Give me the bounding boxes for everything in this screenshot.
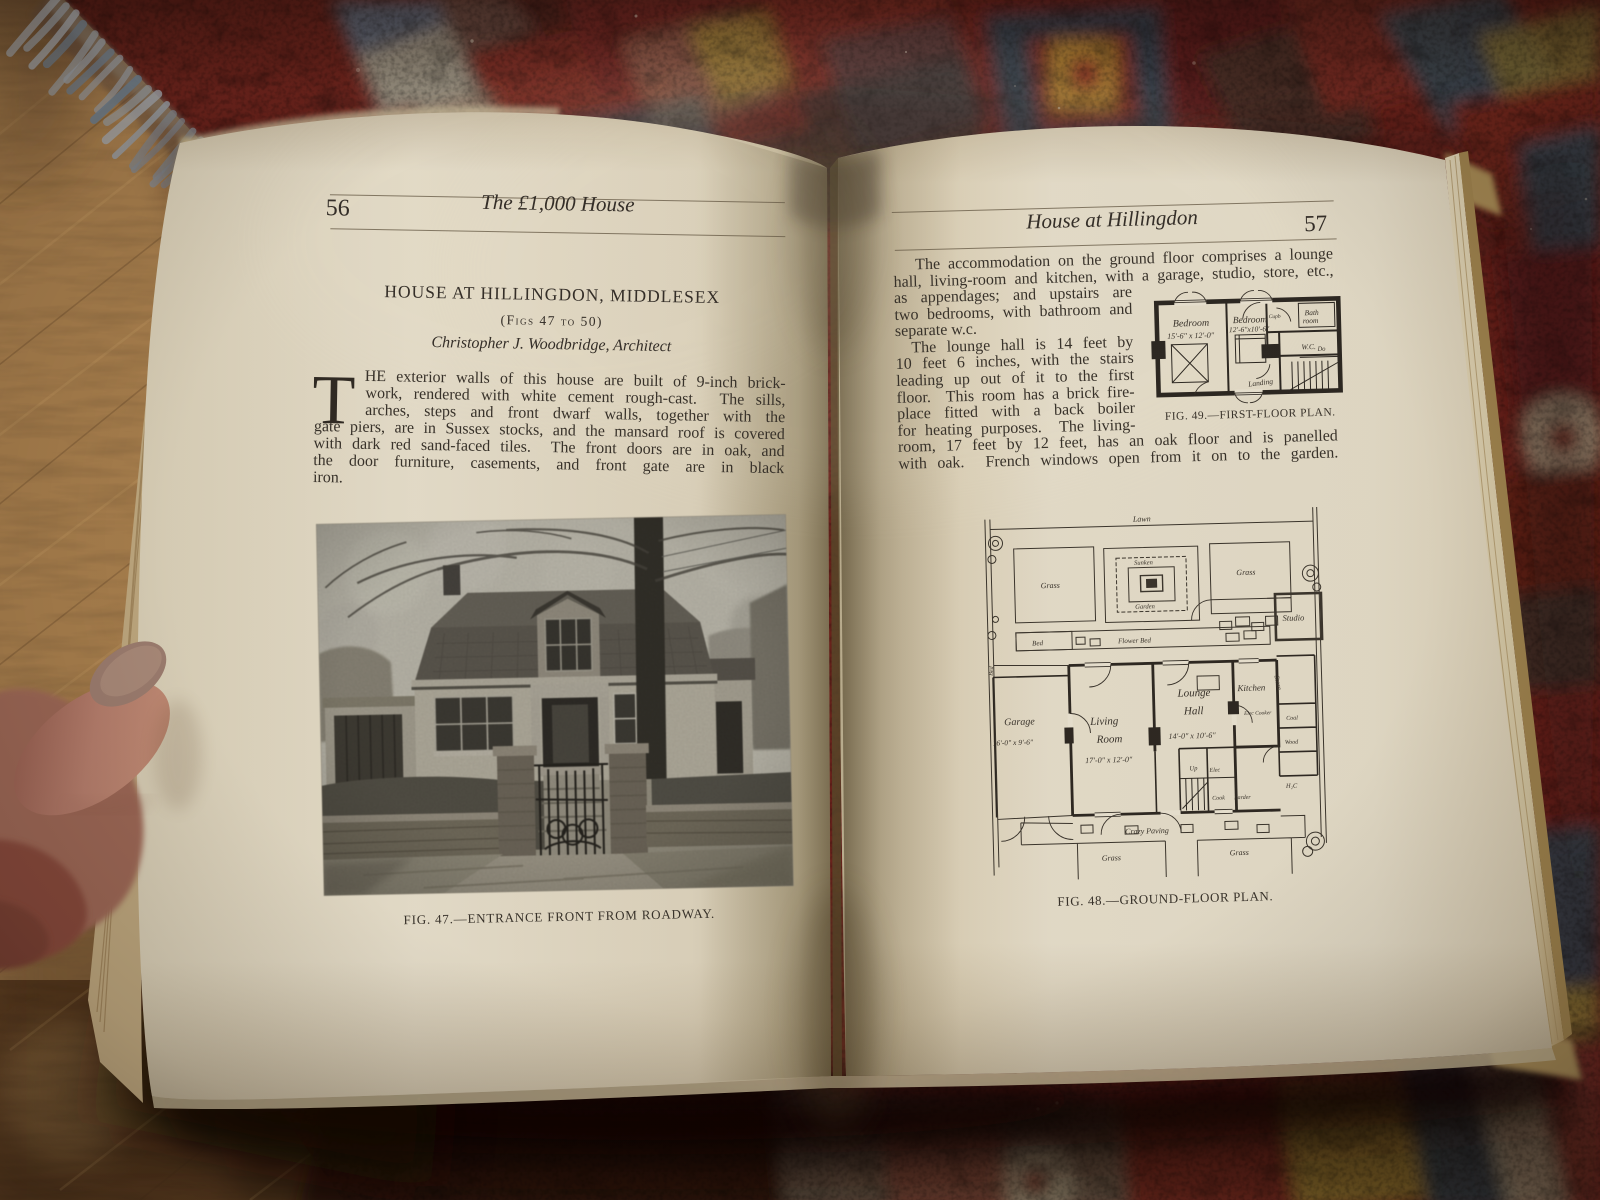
- svg-text:Living: Living: [1089, 715, 1119, 728]
- svg-text:17′-0″ x 12′-0″: 17′-0″ x 12′-0″: [1085, 755, 1133, 765]
- svg-text:Kitchen: Kitchen: [1236, 682, 1266, 693]
- svg-text:Studio: Studio: [1282, 612, 1304, 623]
- svg-text:Bedroom: Bedroom: [1173, 318, 1210, 330]
- svg-text:Lounge: Lounge: [1176, 687, 1210, 700]
- svg-text:Sunken: Sunken: [1134, 559, 1153, 566]
- svg-text:Lawn: Lawn: [1132, 514, 1151, 523]
- svg-text:room: room: [1303, 316, 1319, 325]
- svg-text:14′-0″ x 10′-6″: 14′-0″ x 10′-6″: [1168, 731, 1216, 741]
- svg-text:Grass: Grass: [1230, 848, 1249, 857]
- svg-text:Grass: Grass: [1102, 853, 1121, 862]
- svg-text:Garage: Garage: [1004, 716, 1035, 728]
- svg-text:W.C.: W.C.: [1301, 342, 1316, 351]
- svg-text:Coal: Coal: [1286, 716, 1298, 722]
- svg-text:Garden: Garden: [1135, 603, 1155, 611]
- svg-text:Crazy Paving: Crazy Paving: [1125, 826, 1169, 836]
- svg-text:Wood: Wood: [1285, 740, 1300, 746]
- svg-text:Bed: Bed: [989, 665, 996, 676]
- svg-text:Elec Cooker: Elec Cooker: [1243, 710, 1272, 717]
- svg-text:Elec: Elec: [1208, 768, 1220, 774]
- svg-text:Do: Do: [1316, 346, 1326, 353]
- svg-text:Bed: Bed: [1032, 639, 1044, 647]
- svg-text:Cook: Cook: [1212, 795, 1225, 801]
- svg-text:Up: Up: [1189, 765, 1198, 772]
- svg-text:Larder: Larder: [1233, 795, 1251, 801]
- svg-text:H₂C: H₂C: [1285, 783, 1298, 790]
- svg-text:12′-6″x10′-6″: 12′-6″x10′-6″: [1229, 324, 1270, 334]
- svg-text:15′-6″ x 12′-0″: 15′-6″ x 12′-0″: [1167, 331, 1215, 341]
- svg-text:Grass: Grass: [1041, 581, 1060, 590]
- svg-text:Cupb: Cupb: [1269, 314, 1281, 320]
- svg-text:16′-0″ x 9′-6″: 16′-0″ x 9′-6″: [993, 737, 1034, 747]
- svg-text:Store: Store: [1273, 675, 1284, 691]
- svg-text:Room: Room: [1096, 733, 1123, 746]
- svg-text:Flower Bed: Flower Bed: [1117, 636, 1152, 645]
- svg-text:Grass: Grass: [1236, 568, 1255, 577]
- svg-text:Hall: Hall: [1183, 705, 1204, 718]
- svg-text:Landing: Landing: [1247, 376, 1274, 388]
